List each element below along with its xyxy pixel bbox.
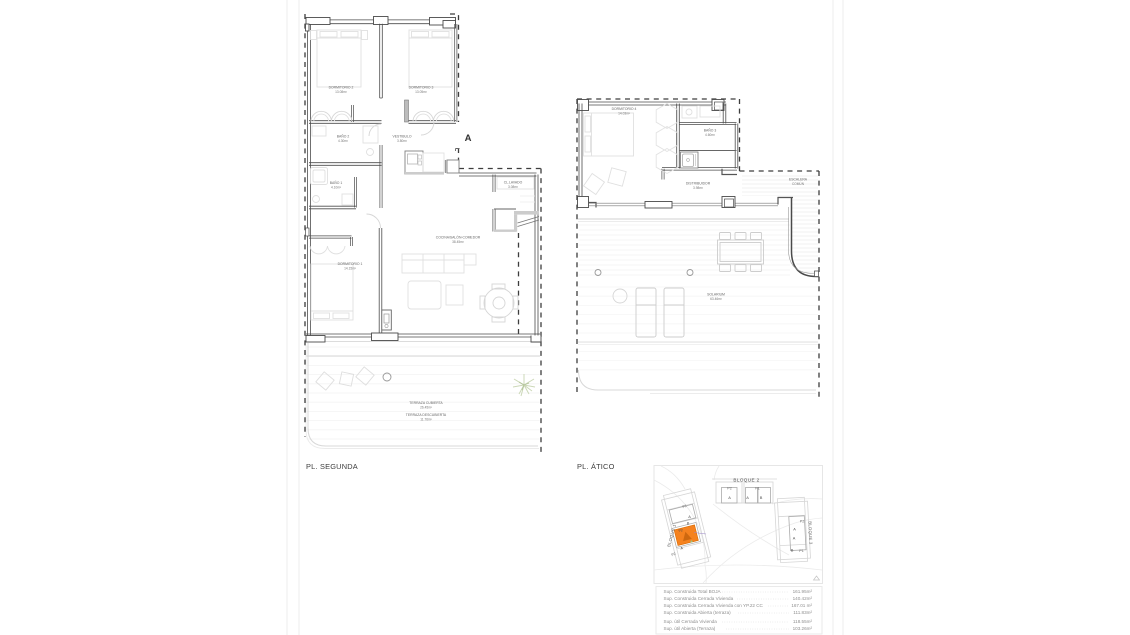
svg-text:DORMITORIO 3: DORMITORIO 3 — [409, 86, 434, 90]
svg-text:3.08m²: 3.08m² — [508, 185, 518, 189]
svg-text:13.05m²: 13.05m² — [415, 90, 427, 94]
svg-text:BAÑO 3: BAÑO 3 — [704, 128, 717, 133]
svg-text:DORMITORIO 1: DORMITORIO 1 — [338, 262, 363, 266]
svg-text:BLOQUE 2: BLOQUE 2 — [733, 478, 759, 483]
svg-text:COCINA/SALÓN-COMEDOR: COCINA/SALÓN-COMEDOR — [436, 235, 481, 240]
svg-text:26.45m²: 26.45m² — [420, 406, 432, 410]
svg-text:BAÑO 2: BAÑO 2 — [337, 134, 350, 139]
svg-text:Sup. Construida Total BOJA: Sup. Construida Total BOJA — [664, 589, 722, 594]
svg-text:4.30m²: 4.30m² — [338, 139, 348, 143]
svg-text:B: B — [791, 548, 794, 553]
svg-text:161.95m²: 161.95m² — [793, 589, 813, 594]
svg-text:A: A — [465, 133, 472, 144]
svg-text:VESTIBULO: VESTIBULO — [392, 135, 411, 139]
svg-text:14.15m²: 14.15m² — [344, 267, 356, 271]
svg-text:P2: P2 — [800, 520, 805, 524]
svg-text:BLOQUE 3: BLOQUE 3 — [808, 521, 814, 545]
svg-text:A: A — [688, 514, 691, 519]
svg-text:BAÑO 1: BAÑO 1 — [330, 180, 343, 185]
svg-text:CL.LAVADO: CL.LAVADO — [504, 181, 523, 185]
svg-text:4.60m²: 4.60m² — [705, 133, 715, 137]
svg-text:A: A — [728, 495, 731, 500]
svg-text:A: A — [793, 536, 796, 541]
svg-text:103.26m²: 103.26m² — [793, 626, 813, 631]
svg-text:4.10m²: 4.10m² — [331, 186, 341, 190]
svg-text:B: B — [760, 495, 763, 500]
svg-text:TERRAZA DESCUBIERTA: TERRAZA DESCUBIERTA — [406, 413, 447, 417]
svg-text:13.08m²: 13.08m² — [335, 90, 347, 94]
svg-text:B: B — [687, 521, 690, 526]
svg-text:14.03m²: 14.03m² — [618, 112, 630, 116]
svg-text:ESCALERA: ESCALERA — [789, 178, 808, 182]
svg-text:3.80m²: 3.80m² — [397, 139, 407, 143]
svg-text:SOLARIUM: SOLARIUM — [707, 293, 725, 297]
svg-text:38.45m²: 38.45m² — [452, 240, 464, 244]
svg-text:118.55m²: 118.55m² — [793, 619, 813, 624]
svg-text:A: A — [746, 495, 749, 500]
svg-text:P1: P1 — [799, 549, 804, 553]
svg-text:COMÚN: COMÚN — [792, 181, 805, 186]
svg-text:PL. SEGUNDA: PL. SEGUNDA — [306, 462, 358, 471]
svg-text:Sup. Construida Cerrada Vivien: Sup. Construida Cerrada Vivienda — [664, 596, 734, 601]
svg-text:3.98m²: 3.98m² — [693, 186, 703, 190]
svg-text:Sup. útil Cerrada Vivienda: Sup. útil Cerrada Vivienda — [664, 619, 718, 624]
svg-text:DORMITORIO 4: DORMITORIO 4 — [612, 107, 637, 111]
svg-text:A: A — [793, 527, 796, 532]
svg-text:Sup. útil Abierta (Terraza): Sup. útil Abierta (Terraza) — [664, 626, 716, 631]
svg-text:PL. ÁTICO: PL. ÁTICO — [577, 462, 615, 471]
svg-text:TERRAZA CUBIERTA: TERRAZA CUBIERTA — [409, 401, 443, 405]
svg-text:63.46m²: 63.46m² — [710, 297, 722, 301]
svg-text:Sup. Construida Abierta (terra: Sup. Construida Abierta (terraza) — [664, 610, 732, 615]
svg-text:111.83m²: 111.83m² — [793, 610, 812, 615]
svg-text:P1: P1 — [755, 487, 760, 491]
svg-text:167.01 m²: 167.01 m² — [791, 603, 812, 608]
svg-text:11.76m²: 11.76m² — [420, 418, 431, 422]
svg-text:140.42m²: 140.42m² — [793, 596, 813, 601]
svg-text:DISTRIBUIDOR: DISTRIBUIDOR — [686, 182, 711, 186]
svg-text:P2: P2 — [727, 487, 732, 491]
svg-text:Sup. Construida Cerrada Vivien: Sup. Construida Cerrada Vivienda con YP.… — [664, 603, 764, 608]
svg-text:DORMITORIO 2: DORMITORIO 2 — [329, 86, 354, 90]
